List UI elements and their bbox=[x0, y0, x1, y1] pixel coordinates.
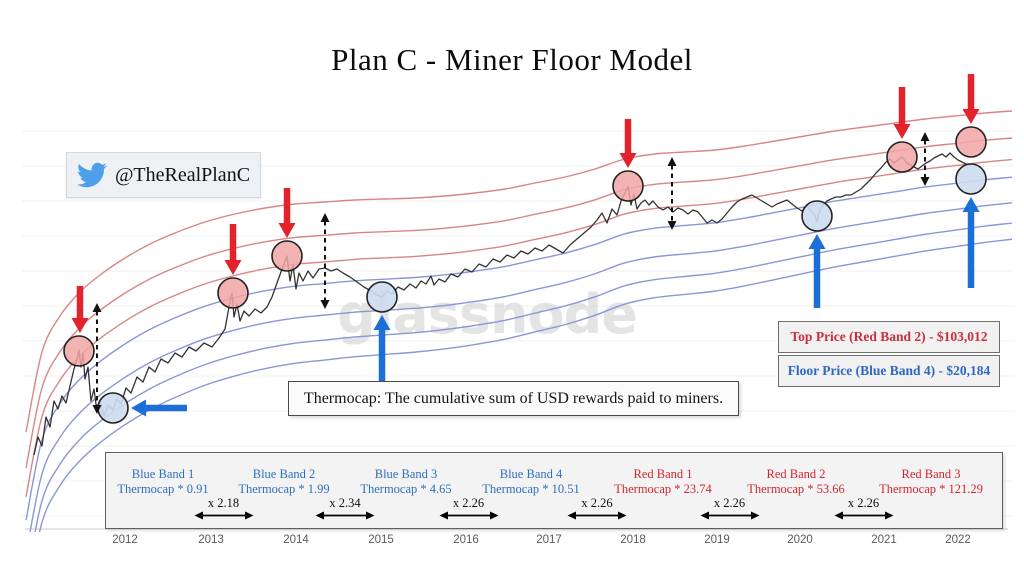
legend-gap-multiplier: x 2.18 bbox=[194, 497, 254, 524]
twitter-handle: @TheRealPlanC bbox=[115, 164, 250, 187]
band-span-dashed-arrow bbox=[921, 132, 930, 186]
twitter-bird-icon bbox=[77, 160, 107, 190]
legend-blue-band-3: Blue Band 3Thermocap * 4.65 bbox=[360, 467, 451, 497]
band-span-dashed-arrow bbox=[668, 157, 677, 230]
x-axis: 2012201320142015201620172018201920202021… bbox=[112, 534, 971, 546]
thermocap-definition-text: Thermocap: The cumulative sum of USD rew… bbox=[304, 390, 723, 408]
double-arrow-icon bbox=[439, 510, 499, 521]
double-arrow-icon bbox=[315, 510, 375, 521]
price-target-boxes: Top Price (Red Band 2) - $103,012 Floor … bbox=[778, 321, 1000, 387]
cycle-floor-marker bbox=[367, 282, 397, 312]
double-arrow-icon bbox=[700, 510, 760, 521]
legend-gap-multiplier: x 2.26 bbox=[834, 497, 894, 524]
red-top-arrow bbox=[963, 74, 980, 124]
double-arrow-icon bbox=[834, 510, 894, 521]
x-tick-label: 2022 bbox=[945, 534, 971, 546]
x-tick-label: 2016 bbox=[453, 534, 479, 546]
legend-blue-band-1: Blue Band 1Thermocap * 0.91 bbox=[117, 467, 208, 497]
legend-red-band-3: Red Band 3Thermocap * 121.29 bbox=[879, 467, 983, 497]
cycle-floor-marker bbox=[956, 164, 986, 194]
x-tick-label: 2012 bbox=[112, 534, 138, 546]
floor-price-box: Floor Price (Blue Band 4) - $20,184 bbox=[778, 355, 1000, 387]
red-top-arrow bbox=[620, 119, 637, 168]
page-title: Plan C - Miner Floor Model bbox=[0, 42, 1024, 78]
legend-gap-multiplier: x 2.26 bbox=[439, 497, 499, 524]
double-arrow-icon bbox=[567, 510, 627, 521]
x-tick-label: 2013 bbox=[198, 534, 224, 546]
x-tick-label: 2021 bbox=[871, 534, 897, 546]
blue-floor-arrow-left bbox=[131, 400, 187, 417]
red-top-arrow bbox=[72, 286, 89, 333]
floor-price-label: Floor Price (Blue Band 4) - $20,184 bbox=[788, 363, 991, 379]
band-span-dashed-arrow bbox=[93, 303, 102, 414]
miner-floor-model-page: glassnode 201220132014201520162017201820… bbox=[0, 0, 1024, 576]
cycle-floor-marker bbox=[98, 393, 128, 423]
top-price-label: Top Price (Red Band 2) - $103,012 bbox=[790, 329, 987, 345]
cycle-floor-marker bbox=[802, 201, 832, 231]
cycle-top-marker bbox=[218, 278, 248, 308]
band-legend-box: Blue Band 1Thermocap * 0.91x 2.18Blue Ba… bbox=[105, 452, 1003, 529]
legend-red-band-2: Red Band 2Thermocap * 53.66 bbox=[747, 467, 845, 497]
legend-blue-band-4: Blue Band 4Thermocap * 10.51 bbox=[482, 467, 580, 497]
x-tick-label: 2014 bbox=[283, 534, 309, 546]
cycle-top-marker bbox=[887, 142, 917, 172]
red-top-arrow bbox=[279, 188, 296, 238]
twitter-badge[interactable]: @TheRealPlanC bbox=[66, 152, 261, 198]
legend-gap-multiplier: x 2.26 bbox=[700, 497, 760, 524]
x-tick-label: 2015 bbox=[368, 534, 394, 546]
blue-floor-arrow bbox=[963, 197, 980, 288]
x-tick-label: 2020 bbox=[787, 534, 813, 546]
legend-red-band-1: Red Band 1Thermocap * 23.74 bbox=[614, 467, 712, 497]
x-tick-label: 2018 bbox=[620, 534, 646, 546]
cycle-top-marker bbox=[613, 171, 643, 201]
double-arrow-icon bbox=[194, 510, 254, 521]
cycle-top-marker bbox=[956, 127, 986, 157]
top-price-box: Top Price (Red Band 2) - $103,012 bbox=[778, 321, 1000, 353]
legend-blue-band-2: Blue Band 2Thermocap * 1.99 bbox=[238, 467, 329, 497]
cycle-top-marker bbox=[64, 336, 94, 366]
thermocap-definition-box: Thermocap: The cumulative sum of USD rew… bbox=[288, 381, 739, 416]
blue-floor-arrow bbox=[374, 315, 391, 390]
cycle-top-marker bbox=[272, 241, 302, 271]
legend-gap-multiplier: x 2.34 bbox=[315, 497, 375, 524]
x-tick-label: 2019 bbox=[704, 534, 730, 546]
x-tick-label: 2017 bbox=[536, 534, 562, 546]
legend-gap-multiplier: x 2.26 bbox=[567, 497, 627, 524]
